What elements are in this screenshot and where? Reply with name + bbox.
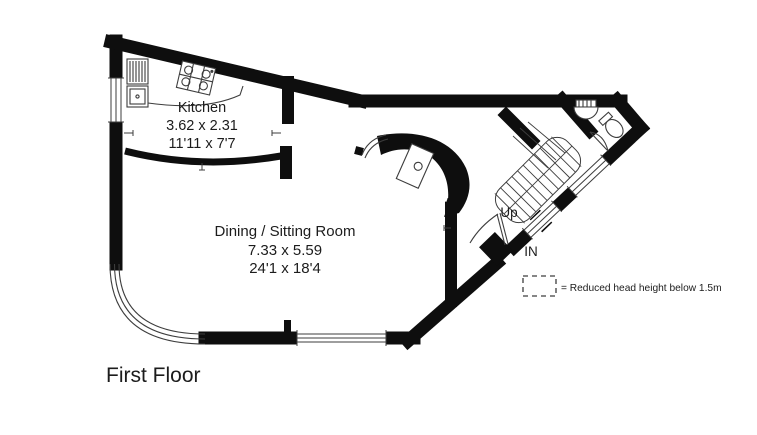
dining-metric-dimensions: 7.33 x 5.59 [248,242,322,259]
window-left [108,78,124,122]
floorplan-image: Kitchen 3.62 x 2.31 11'11 x 7'7 Dining /… [0,0,757,435]
fridge-icon [127,59,148,84]
kitchen-imperial-dimensions: 11'11 x 7'7 [168,136,235,152]
bathroom-door-arc [590,132,608,151]
bay-window-curve [110,264,205,344]
up-label: Up [500,205,517,220]
kitchen-divider-arc [125,151,281,162]
entrance-wall-block [479,232,513,266]
flue-box-icon [396,144,433,188]
stair-stub-wall [506,115,532,141]
floorplan-canvas: Kitchen 3.62 x 2.31 11'11 x 7'7 Dining /… [0,0,757,435]
kitchen-metric-dimensions: 3.62 x 2.31 [166,118,238,134]
floor-title: First Floor [106,364,201,387]
legend-swatch [523,276,556,296]
bottom-wall-stub [284,320,291,332]
basin-icon [574,100,598,119]
legend-text: = Reduced head height below 1.5m [561,283,722,294]
dining-imperial-dimensions: 24'1 x 18'4 [249,260,321,277]
entrance-in-label: IN [524,244,538,259]
chimney-recess [390,196,447,204]
kitchen-name-label: Kitchen [178,100,226,116]
window-bottom [297,330,386,346]
sink-icon [127,86,148,107]
dining-name-label: Dining / Sitting Room [215,223,356,240]
